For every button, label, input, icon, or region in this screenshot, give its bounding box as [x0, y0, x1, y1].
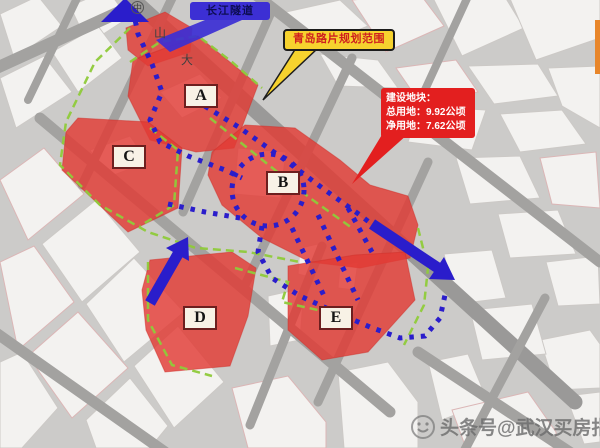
plot-callout-line1: 建设地块：	[386, 92, 470, 106]
map-edge-accent	[595, 20, 600, 74]
zone-label-d: D	[183, 306, 217, 330]
zone-label-e: E	[319, 306, 353, 330]
zone-label-b: B	[266, 171, 300, 195]
watermark-text: 头条号@武汉买房指南	[440, 413, 600, 440]
smiley-icon	[410, 414, 436, 440]
road-label-char-circled: 中	[131, 1, 144, 14]
zone-label-a: A	[184, 84, 218, 108]
scope-callout: 青岛路片规划范围	[283, 29, 395, 51]
scope-callout-pointer	[263, 48, 318, 100]
watermark: 头条号@武汉买房指南	[410, 413, 600, 440]
zone-label-c: C	[112, 145, 146, 169]
plot-callout-line3: 净用地：7.62公顷	[386, 120, 470, 134]
planning-map-image: 长江隧道 中 山 大 青岛路片规划范围 建设地块： 总用地：9.92公顷 净用地…	[0, 0, 600, 448]
map-canvas	[0, 0, 600, 448]
plot-callout: 建设地块： 总用地：9.92公顷 净用地：7.62公顷	[381, 88, 475, 138]
road-label-char: 大	[181, 54, 193, 66]
plot-callout-line2: 总用地：9.92公顷	[386, 106, 470, 120]
road-label-char: 山	[154, 27, 166, 39]
tunnel-banner: 长江隧道	[190, 2, 270, 20]
